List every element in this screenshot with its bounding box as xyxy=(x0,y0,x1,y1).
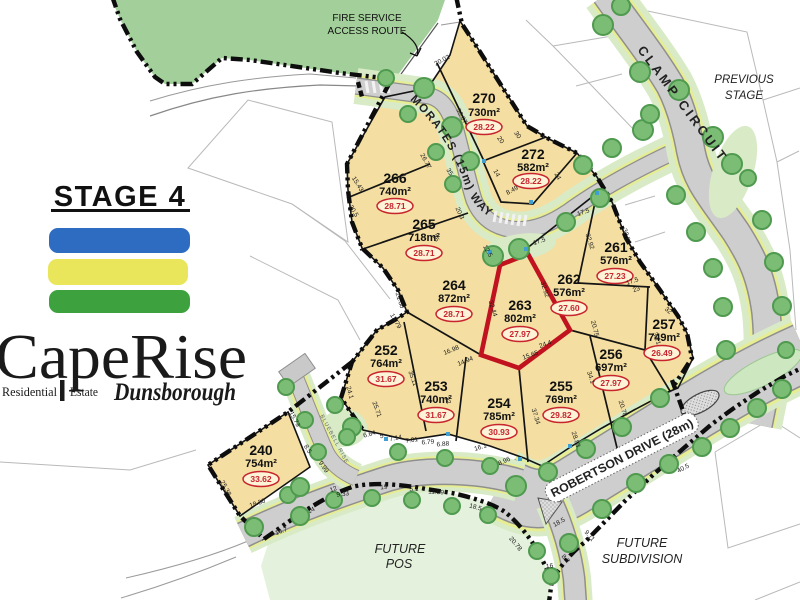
svg-text:257: 257 xyxy=(652,316,676,332)
svg-text:Estate: Estate xyxy=(70,385,98,399)
svg-text:PREVIOUS: PREVIOUS xyxy=(714,74,774,86)
svg-text:28.71: 28.71 xyxy=(443,309,465,319)
svg-text:256: 256 xyxy=(599,346,623,362)
svg-text:802m²: 802m² xyxy=(504,313,536,325)
svg-text:STAGE: STAGE xyxy=(725,90,763,102)
svg-text:730m²: 730m² xyxy=(468,107,500,119)
svg-text:272: 272 xyxy=(521,146,545,162)
svg-text:27.23: 27.23 xyxy=(604,271,626,281)
svg-text:POS: POS xyxy=(386,557,413,571)
svg-text:252: 252 xyxy=(374,342,398,358)
svg-text:270: 270 xyxy=(472,90,496,106)
svg-text:265: 265 xyxy=(412,216,436,232)
svg-text:FUTURE: FUTURE xyxy=(617,536,668,550)
svg-text:5.1: 5.1 xyxy=(409,486,419,493)
svg-text:264: 264 xyxy=(442,277,466,293)
svg-text:28.22: 28.22 xyxy=(473,122,495,132)
svg-text:28.22: 28.22 xyxy=(520,176,542,186)
svg-text:253: 253 xyxy=(424,378,448,394)
svg-text:263: 263 xyxy=(508,297,532,313)
svg-text:STAGE 4: STAGE 4 xyxy=(54,181,186,213)
svg-text:19: 19 xyxy=(380,484,388,492)
svg-text:28.71: 28.71 xyxy=(384,201,406,211)
svg-text:764m²: 764m² xyxy=(370,358,402,370)
svg-text:254: 254 xyxy=(487,395,511,411)
svg-text:28.71: 28.71 xyxy=(413,248,435,258)
svg-text:FUTURE: FUTURE xyxy=(375,542,426,556)
svg-text:255: 255 xyxy=(549,378,573,394)
svg-text:Dunsborough: Dunsborough xyxy=(113,379,236,406)
svg-text:30.93: 30.93 xyxy=(488,427,510,437)
svg-text:576m²: 576m² xyxy=(600,255,632,267)
svg-text:27.60: 27.60 xyxy=(558,303,580,313)
svg-text:785m²: 785m² xyxy=(483,411,515,423)
svg-text:240: 240 xyxy=(249,442,273,458)
svg-text:26.49: 26.49 xyxy=(651,348,673,358)
svg-text:FIRE SERVICE: FIRE SERVICE xyxy=(332,13,402,24)
svg-text:754m²: 754m² xyxy=(245,458,277,470)
svg-text:11.59: 11.59 xyxy=(428,489,445,497)
svg-text:31.67: 31.67 xyxy=(425,410,447,420)
svg-text:29.82: 29.82 xyxy=(550,410,572,420)
svg-text:33.62: 33.62 xyxy=(250,474,272,484)
svg-text:266: 266 xyxy=(383,170,407,186)
svg-text:769m²: 769m² xyxy=(545,394,577,406)
svg-text:740m²: 740m² xyxy=(379,186,411,198)
svg-text:262: 262 xyxy=(557,271,581,287)
svg-text:576m²: 576m² xyxy=(553,287,585,299)
svg-text:SUBDIVISION: SUBDIVISION xyxy=(602,552,684,566)
svg-text:6.88: 6.88 xyxy=(436,440,450,448)
svg-text:31.67: 31.67 xyxy=(375,374,397,384)
svg-text:27.97: 27.97 xyxy=(509,329,531,339)
svg-text:ACCESS ROUTE: ACCESS ROUTE xyxy=(328,26,407,37)
svg-text:Residential: Residential xyxy=(2,385,58,399)
svg-text:27.97: 27.97 xyxy=(600,378,622,388)
svg-text:6.79: 6.79 xyxy=(421,438,435,446)
svg-text:697m²: 697m² xyxy=(595,362,627,374)
svg-text:582m²: 582m² xyxy=(517,162,549,174)
svg-text:872m²: 872m² xyxy=(438,293,470,305)
